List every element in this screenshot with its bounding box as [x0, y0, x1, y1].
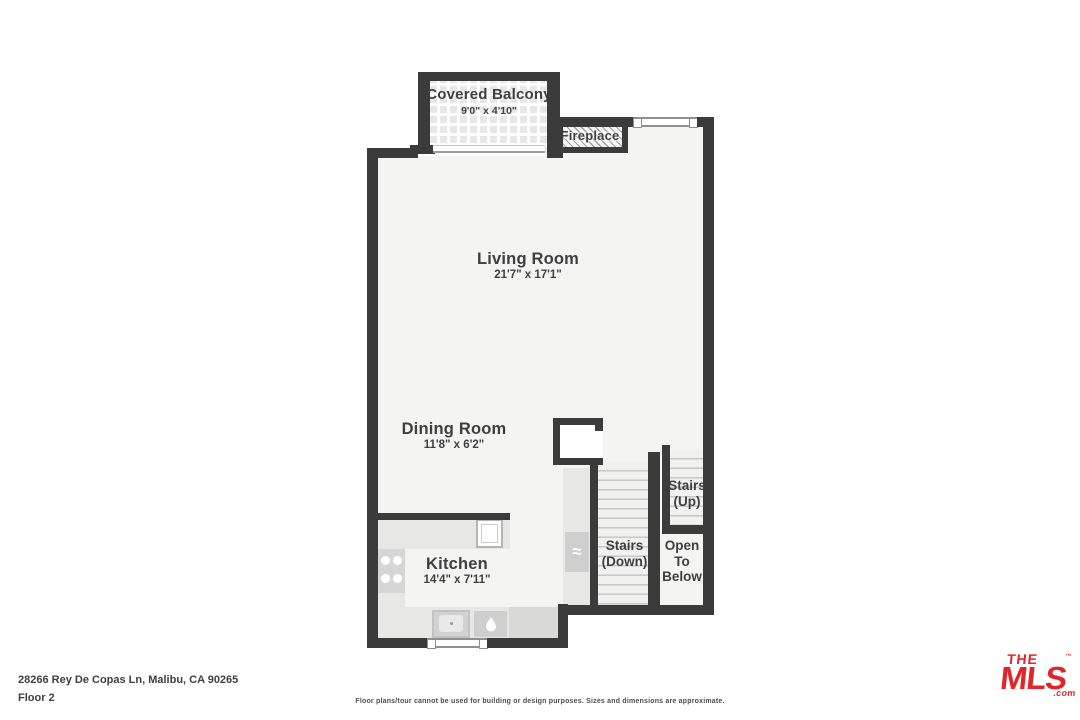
wall [558, 605, 714, 615]
wall [560, 117, 634, 127]
wall [662, 525, 714, 534]
logo-com-text: .com [1053, 688, 1076, 698]
open-to-below-label: Open To Below [650, 538, 714, 585]
kitchen-label: Kitchen 14'4" x 7'11" [357, 555, 557, 587]
open-below-line2: To [650, 554, 714, 570]
dishwasher [474, 611, 507, 637]
room-name: Kitchen [357, 555, 557, 573]
kitchen-sink [432, 610, 470, 638]
faucet-icon [450, 622, 453, 625]
room-dims: 21'7" x 17'1" [428, 268, 628, 282]
oven [476, 519, 503, 548]
window-cap-icon [633, 118, 642, 128]
wall [595, 418, 603, 431]
window [427, 638, 488, 648]
room-name: Dining Room [354, 420, 554, 438]
address-text: 28266 Rey De Copas Ln, Malibu, CA 90265 [18, 674, 238, 686]
dining-room-label: Dining Room 11'8" x 6'2" [354, 420, 554, 452]
closet-door-gap [595, 431, 603, 458]
appliance-waves-icon: ≈ [572, 542, 581, 562]
open-below-line3: Below [650, 569, 714, 585]
stairs-up-label: Stairs (Up) [655, 478, 719, 509]
floor-plan-page: Fireplace ≈ [0, 0, 1080, 720]
stairs-up-line1: Stairs [655, 478, 719, 494]
stairs-down-line1: Stairs [592, 538, 657, 554]
living-room-label: Living Room 21'7" x 17'1" [428, 250, 628, 282]
stairs-up-line2: (Up) [655, 494, 719, 510]
room-name: Living Room [428, 250, 628, 268]
covered-balcony-label: Covered Balcony 9'0" x 4'10" [420, 86, 558, 118]
water-drop-icon [485, 617, 497, 632]
window [633, 117, 698, 127]
wall [367, 513, 510, 520]
room-dims: 14'4" x 7'11" [357, 573, 557, 587]
kitchen-counter-section [509, 607, 558, 638]
disclaimer-text: Floor plans/tour cannot be used for buil… [0, 698, 1080, 705]
themls-logo: THE ™ MLS .com [996, 652, 1080, 704]
stairs-down-label: Stairs (Down) [592, 538, 657, 569]
stairs-down-line2: (Down) [592, 554, 657, 570]
wall [367, 638, 428, 648]
wall [367, 148, 418, 158]
window-cap-icon [427, 639, 436, 649]
room-dims: 11'8" x 6'2" [354, 438, 554, 452]
fireplace-label: Fireplace [561, 128, 620, 143]
oven-door-icon [481, 524, 498, 543]
balcony-sliding-door [433, 145, 545, 153]
refrigerator: ≈ [565, 532, 589, 572]
open-below-line1: Open [650, 538, 714, 554]
stairs-down-treads [598, 462, 648, 605]
wall [487, 638, 568, 648]
room-dims: 9'0" x 4'10" [420, 104, 558, 118]
room-name: Covered Balcony [420, 86, 558, 104]
wall [590, 458, 598, 605]
